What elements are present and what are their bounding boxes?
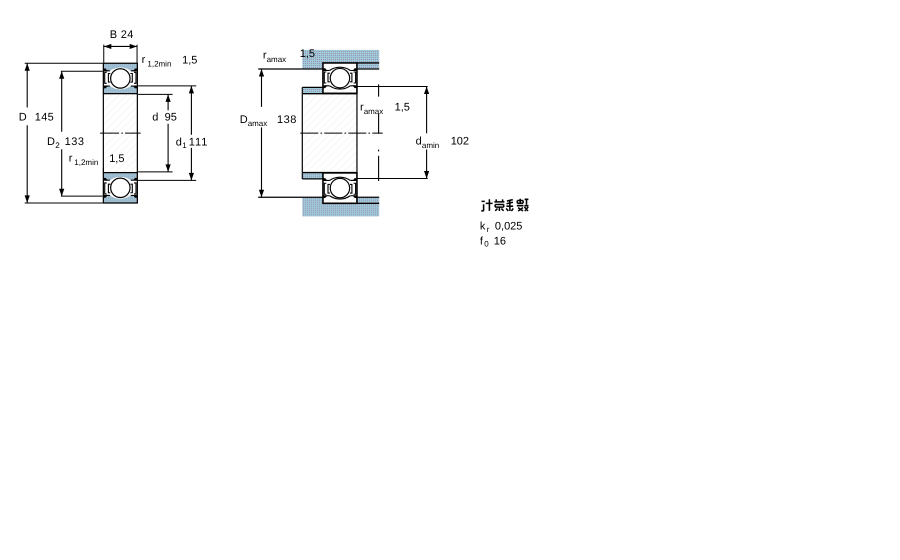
svg-text:amin: amin <box>422 141 439 150</box>
svg-text:d: d <box>152 112 158 124</box>
svg-text:16: 16 <box>494 235 506 247</box>
svg-text:1,5: 1,5 <box>109 153 124 165</box>
svg-text:138: 138 <box>277 114 297 126</box>
svg-text:1,5: 1,5 <box>395 101 410 113</box>
svg-text:102: 102 <box>451 136 469 148</box>
svg-text:D: D <box>47 136 55 148</box>
svg-text:2: 2 <box>55 141 60 150</box>
svg-text:d: d <box>176 136 182 148</box>
svg-text:r: r <box>69 153 73 165</box>
svg-text:D: D <box>19 112 27 124</box>
svg-text:145: 145 <box>35 112 54 124</box>
svg-text:D: D <box>240 114 248 126</box>
svg-text:1: 1 <box>182 141 187 150</box>
svg-text:0,025: 0,025 <box>495 221 523 233</box>
svg-text:amax: amax <box>248 119 268 128</box>
svg-text:B 24: B 24 <box>110 29 134 41</box>
svg-text:1,5: 1,5 <box>182 54 197 66</box>
svg-text:r: r <box>142 54 146 66</box>
svg-text:133: 133 <box>65 136 85 148</box>
svg-text:0: 0 <box>484 239 489 248</box>
svg-text:k: k <box>480 221 486 233</box>
svg-text:amax: amax <box>364 107 384 116</box>
svg-text:amax: amax <box>267 55 287 64</box>
svg-text:111: 111 <box>189 136 208 148</box>
svg-text:d: d <box>416 136 422 148</box>
svg-text:95: 95 <box>165 112 177 124</box>
svg-text:r: r <box>487 225 490 234</box>
svg-text:1,5: 1,5 <box>300 48 315 60</box>
svg-text:1,2min: 1,2min <box>147 60 171 69</box>
svg-text:1,2min: 1,2min <box>74 158 98 167</box>
